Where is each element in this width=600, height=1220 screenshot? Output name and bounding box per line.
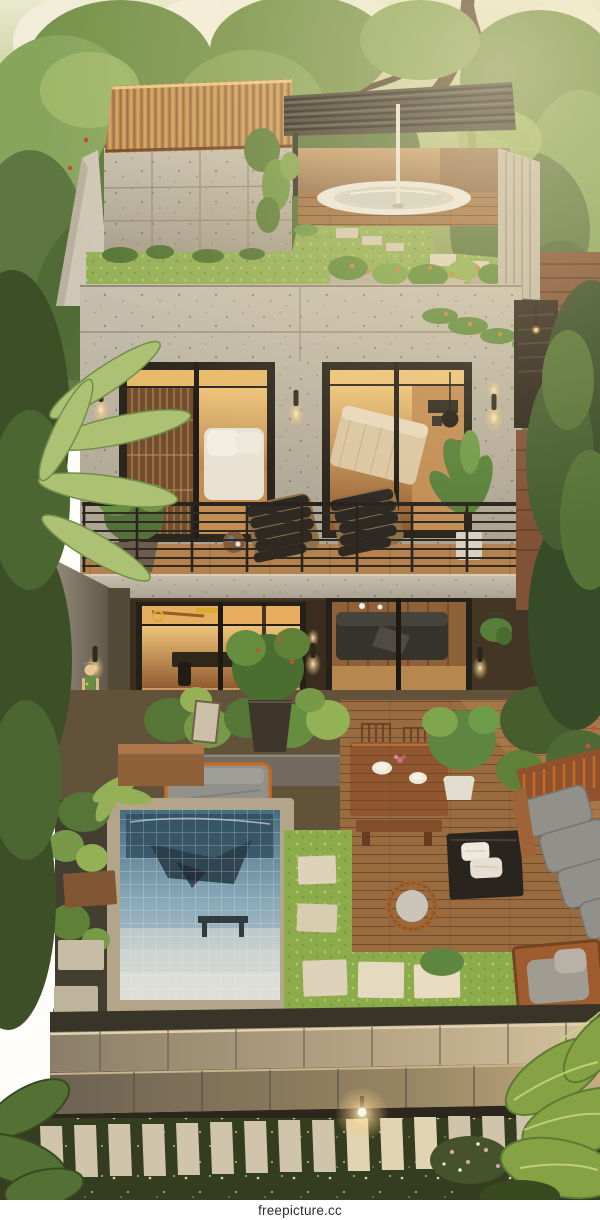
scene-illustration	[0, 0, 600, 1200]
watermark-bar: freepicture.cc	[0, 1200, 600, 1220]
rendered-photo: freepicture.cc	[0, 0, 600, 1220]
watermark-text: freepicture.cc	[258, 1203, 342, 1218]
sunlight-overlay	[0, 0, 600, 1200]
